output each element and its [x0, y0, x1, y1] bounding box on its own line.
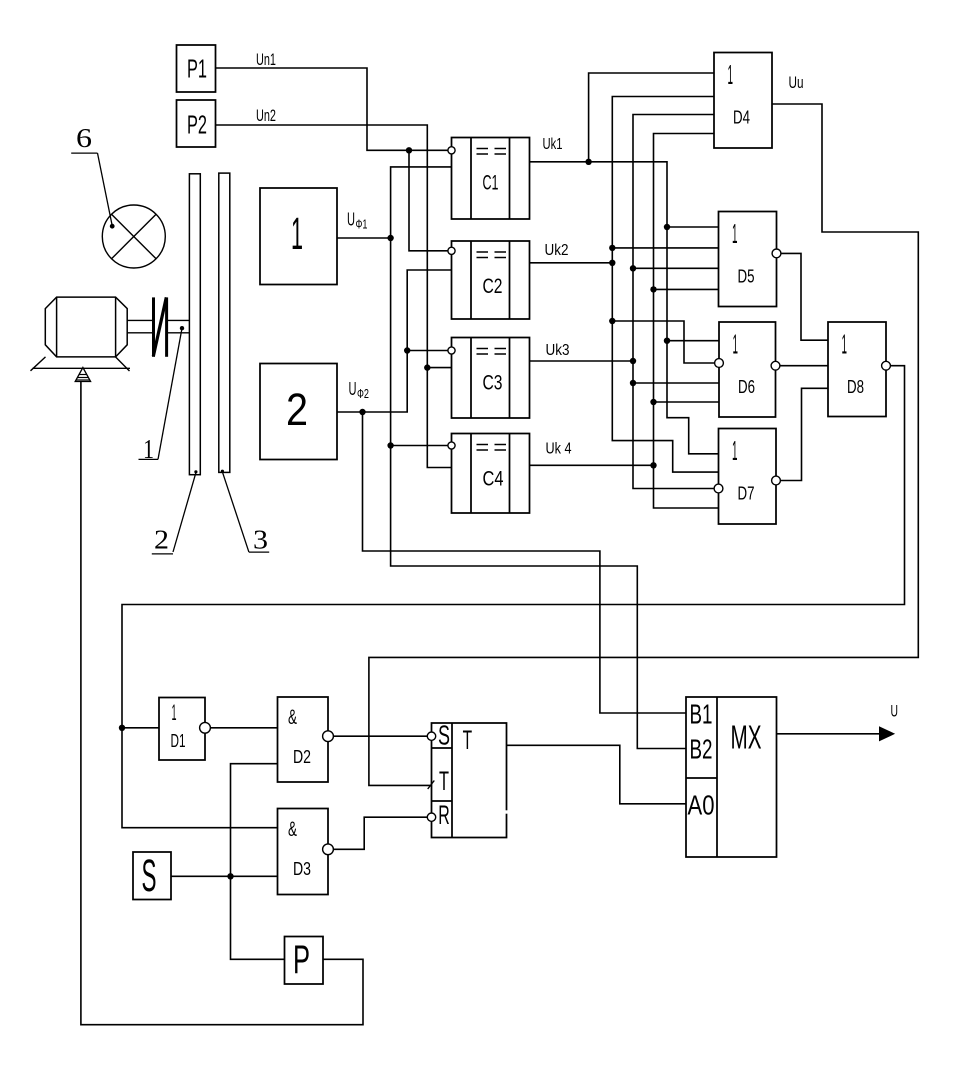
svg-text:D4: D4 [733, 108, 750, 128]
svg-text:D7: D7 [738, 484, 755, 504]
svg-text:D1: D1 [171, 731, 186, 751]
svg-text:C2: C2 [483, 275, 503, 298]
svg-text:S: S [438, 720, 450, 751]
svg-text:B2: B2 [690, 734, 713, 765]
svg-text:&: & [288, 706, 297, 729]
svg-text:Uk 4: Uk 4 [546, 441, 572, 458]
svg-text:Uk1: Uk1 [543, 136, 563, 153]
svg-text:Ф2: Ф2 [357, 386, 369, 401]
svg-text:Un1: Un1 [256, 50, 276, 69]
svg-text:Uk3: Uk3 [546, 342, 570, 359]
svg-text:1: 1 [291, 208, 303, 259]
svg-text:D6: D6 [738, 377, 755, 397]
svg-text:Uu: Uu [789, 73, 804, 92]
svg-text:D2: D2 [293, 747, 311, 767]
svg-text:&: & [288, 818, 297, 841]
svg-text:P2: P2 [187, 110, 207, 140]
svg-text:U: U [349, 379, 357, 399]
svg-text:D3: D3 [293, 859, 311, 879]
svg-text:C4: C4 [483, 468, 504, 491]
svg-text:1: 1 [732, 218, 738, 249]
svg-text:1: 1 [733, 329, 739, 360]
svg-text:D5: D5 [738, 267, 755, 287]
svg-text:MX: MX [731, 719, 762, 756]
svg-text:B1: B1 [690, 699, 713, 730]
svg-text:2: 2 [286, 384, 308, 435]
svg-text:Un2: Un2 [256, 106, 276, 125]
svg-text:3: 3 [253, 525, 268, 555]
svg-text:C1: C1 [483, 172, 499, 195]
svg-text:Uk2: Uk2 [545, 242, 569, 259]
svg-text:6: 6 [76, 123, 92, 153]
svg-text:S: S [142, 850, 157, 901]
svg-text:2: 2 [154, 525, 169, 555]
svg-text:1: 1 [732, 435, 738, 466]
svg-text:P1: P1 [187, 54, 207, 84]
svg-text:R: R [438, 800, 450, 830]
svg-text:1: 1 [728, 59, 734, 90]
svg-text:D8: D8 [847, 377, 864, 397]
svg-text:T: T [439, 766, 449, 796]
svg-text:T: T [463, 725, 473, 755]
svg-text:U: U [347, 210, 355, 230]
svg-text:C3: C3 [483, 372, 503, 395]
svg-text:P: P [293, 938, 310, 982]
svg-text:A0: A0 [688, 790, 715, 821]
svg-text:1: 1 [172, 700, 177, 725]
svg-text:1: 1 [842, 329, 848, 360]
svg-text:Ф1: Ф1 [356, 217, 368, 232]
svg-text:U: U [891, 702, 899, 721]
